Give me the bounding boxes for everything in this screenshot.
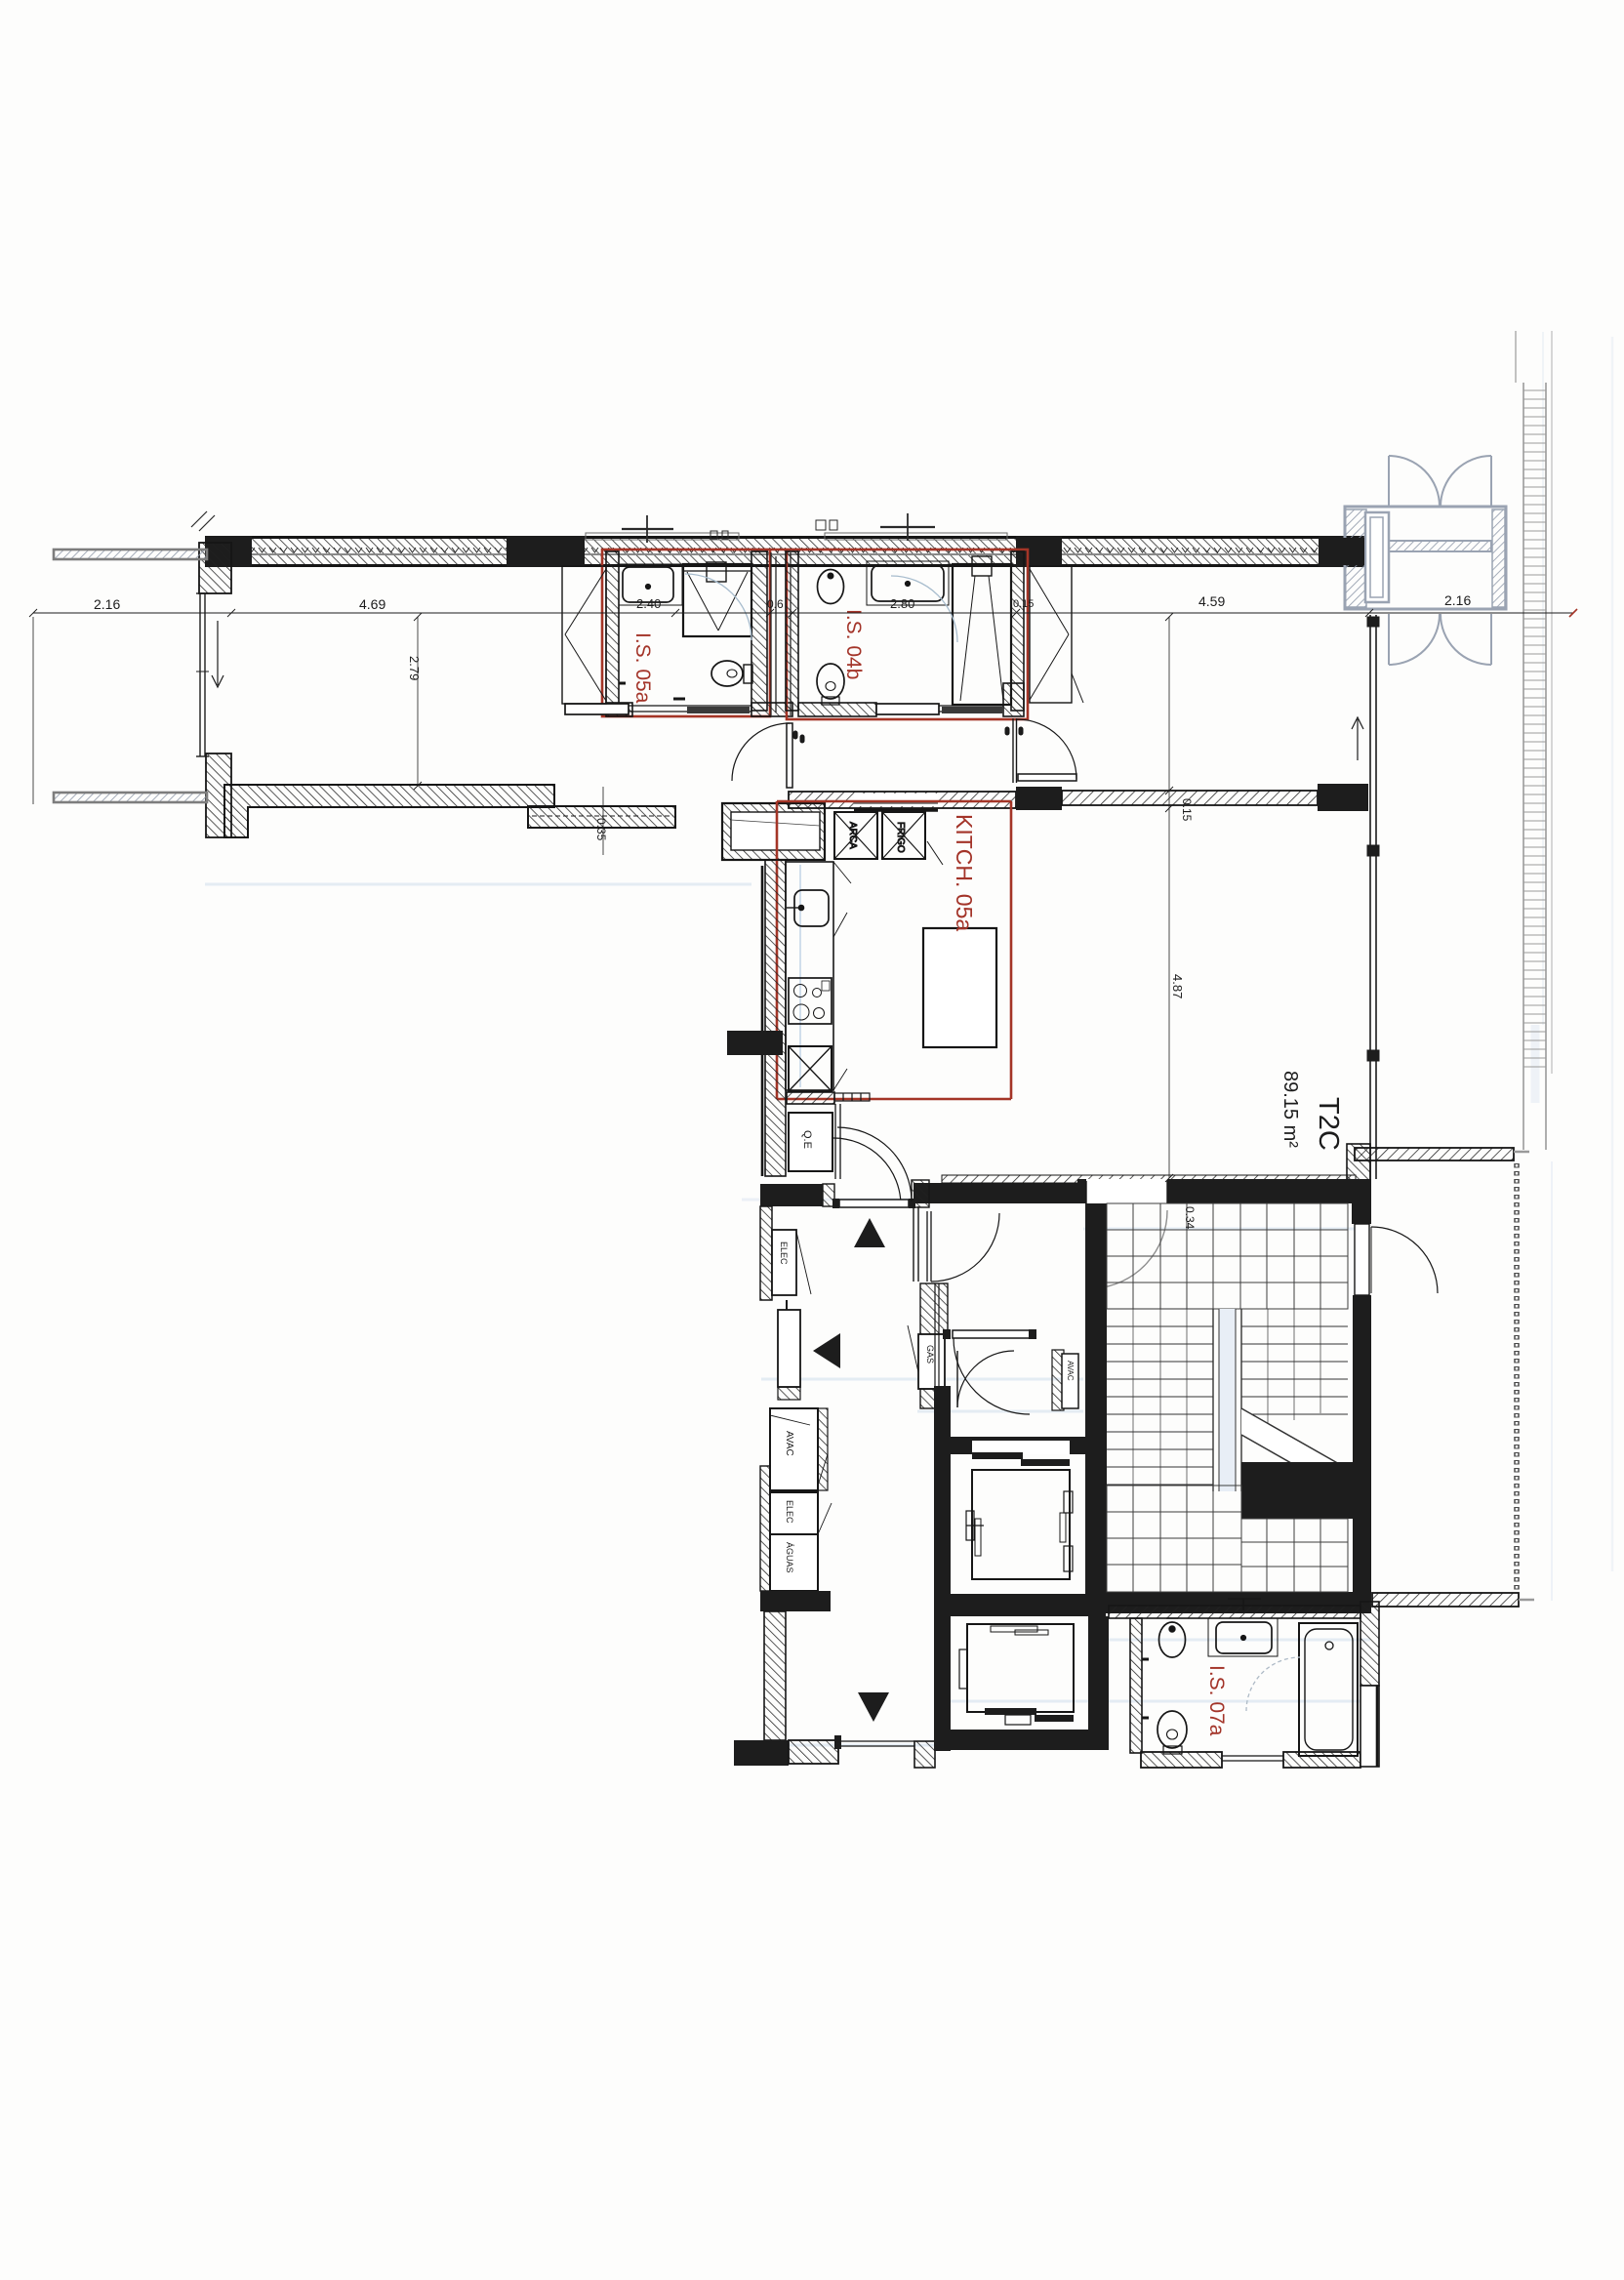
svg-text:ELEC: ELEC xyxy=(779,1242,789,1265)
svg-text:0.15: 0.15 xyxy=(1180,798,1194,822)
svg-text:I.S. 04b: I.S. 04b xyxy=(842,609,865,679)
svg-text:ELEC: ELEC xyxy=(785,1500,794,1524)
svg-text:2.80: 2.80 xyxy=(890,596,914,611)
svg-text:2.40: 2.40 xyxy=(636,596,661,611)
svg-text:Q.E: Q.E xyxy=(801,1130,813,1149)
svg-text:T2C: T2C xyxy=(1313,1097,1344,1151)
svg-text:2.16: 2.16 xyxy=(1444,592,1471,608)
svg-text:0.6: 0.6 xyxy=(767,597,784,611)
svg-text:2.79: 2.79 xyxy=(407,656,422,680)
svg-text:4.69: 4.69 xyxy=(359,596,386,612)
svg-text:0.15: 0.15 xyxy=(1013,598,1034,610)
svg-text:I.S. 05a: I.S. 05a xyxy=(631,632,654,704)
svg-text:AVAC: AVAC xyxy=(784,1431,794,1456)
svg-text:ÁGUAS: ÁGUAS xyxy=(785,1542,794,1573)
svg-text:2.16: 2.16 xyxy=(94,596,120,612)
svg-text:ARCA: ARCA xyxy=(847,822,858,849)
svg-text:GAS: GAS xyxy=(925,1345,935,1364)
svg-text:KITCH. 05a: KITCH. 05a xyxy=(952,814,977,931)
svg-text:4.87: 4.87 xyxy=(1170,974,1185,998)
svg-text:89.15 m²: 89.15 m² xyxy=(1279,1071,1301,1148)
svg-text:4.59: 4.59 xyxy=(1198,593,1225,609)
svg-text:AVAC: AVAC xyxy=(1066,1361,1075,1381)
svg-text:0.35: 0.35 xyxy=(594,818,608,841)
svg-text:0.34: 0.34 xyxy=(1183,1206,1197,1230)
svg-text:FRIGO: FRIGO xyxy=(895,822,906,853)
svg-text:I.S. 07a: I.S. 07a xyxy=(1205,1665,1228,1736)
